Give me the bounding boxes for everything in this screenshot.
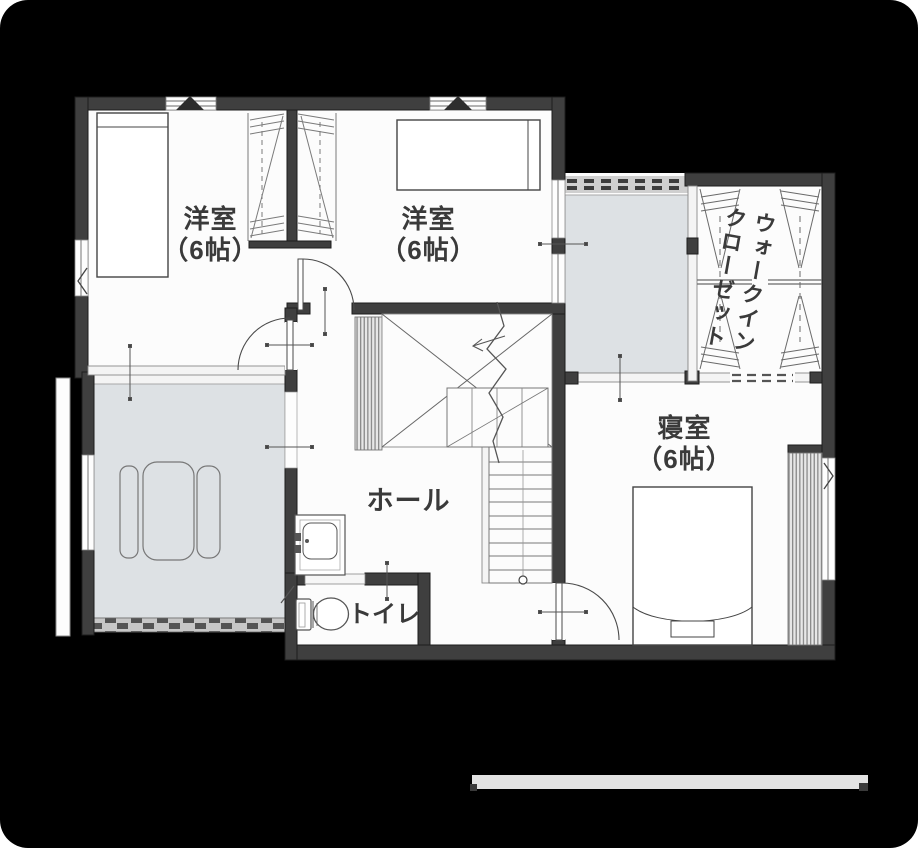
wall-hall-bedroom: [552, 303, 565, 583]
floor-plan-canvas: 洋室 （6帖） 洋室 （6帖） 寝室 （6帖） ホール トイレ ウォークイン ク…: [0, 0, 918, 848]
hall-balcony-opening: [285, 392, 297, 468]
wall-toilet-right: [418, 573, 430, 645]
window-left-wall: [75, 240, 88, 296]
wall-toilet-left: [285, 573, 297, 660]
wall-hall-left-a: [285, 370, 297, 392]
thinwall-wic-left-block: [687, 238, 698, 254]
faucet: [295, 533, 301, 541]
wall-freespace-west-a: [82, 372, 94, 455]
balcony-bench-set: [120, 462, 220, 560]
left-balcony-outer-band: [56, 378, 70, 636]
wall-toilet-top-b: [365, 573, 418, 585]
window-freespace-west: [82, 455, 94, 550]
wall-top: [75, 97, 565, 110]
window-top-2: [430, 96, 486, 110]
wall-room2-right-a: [552, 97, 565, 180]
stair-flight: [489, 447, 552, 583]
thinwall-stair-flight-left: [482, 447, 489, 583]
washbasin: [295, 515, 345, 575]
left-balcony-top-strip: [88, 374, 285, 384]
window-room2-east-b: [552, 254, 565, 303]
double-bed: [633, 487, 752, 645]
bedroom-louver-strip: [788, 453, 822, 645]
toilet-tank: [296, 599, 311, 630]
single-bed-2: [397, 120, 540, 190]
scale-bar: [470, 775, 868, 791]
toilet-bowl: [314, 598, 349, 630]
wall-right-outer: [822, 173, 835, 660]
window-top-1: [166, 96, 216, 110]
bench-right: [197, 466, 220, 558]
thinwall-bedroom-top-block1: [565, 372, 578, 384]
window-right-wall: [822, 458, 835, 580]
stair-newel: [519, 576, 527, 584]
wall-wic-top: [685, 173, 835, 186]
wall-bottom-outer: [285, 645, 835, 660]
single-bed-1: [97, 113, 168, 277]
door-leaf-room2: [298, 259, 303, 310]
wall-room2-right-b: [552, 238, 565, 254]
wall-strip-cap: [788, 445, 822, 453]
toilet: [296, 598, 349, 630]
floor-plan-svg: [0, 0, 918, 848]
wall-room2-south-b: [352, 303, 565, 314]
bench-table: [143, 462, 194, 560]
thinwall-bedroom-top-block3: [810, 372, 822, 383]
thinwall-wic-left: [688, 186, 697, 381]
wall-closet-divider: [287, 110, 297, 248]
top-balcony-rail-strip: [565, 176, 688, 193]
top-balcony-floor: [565, 195, 688, 373]
stair-upper-flight-strip: [355, 317, 382, 450]
window-room2-east-a: [552, 180, 565, 238]
bench-left: [120, 466, 138, 558]
wall-freespace-west-b: [82, 550, 94, 635]
closet-rail: [249, 241, 331, 248]
left-balcony-railing: [94, 618, 285, 632]
thinwall-room1-south: [88, 366, 285, 375]
wall-left-upper: [75, 97, 88, 378]
